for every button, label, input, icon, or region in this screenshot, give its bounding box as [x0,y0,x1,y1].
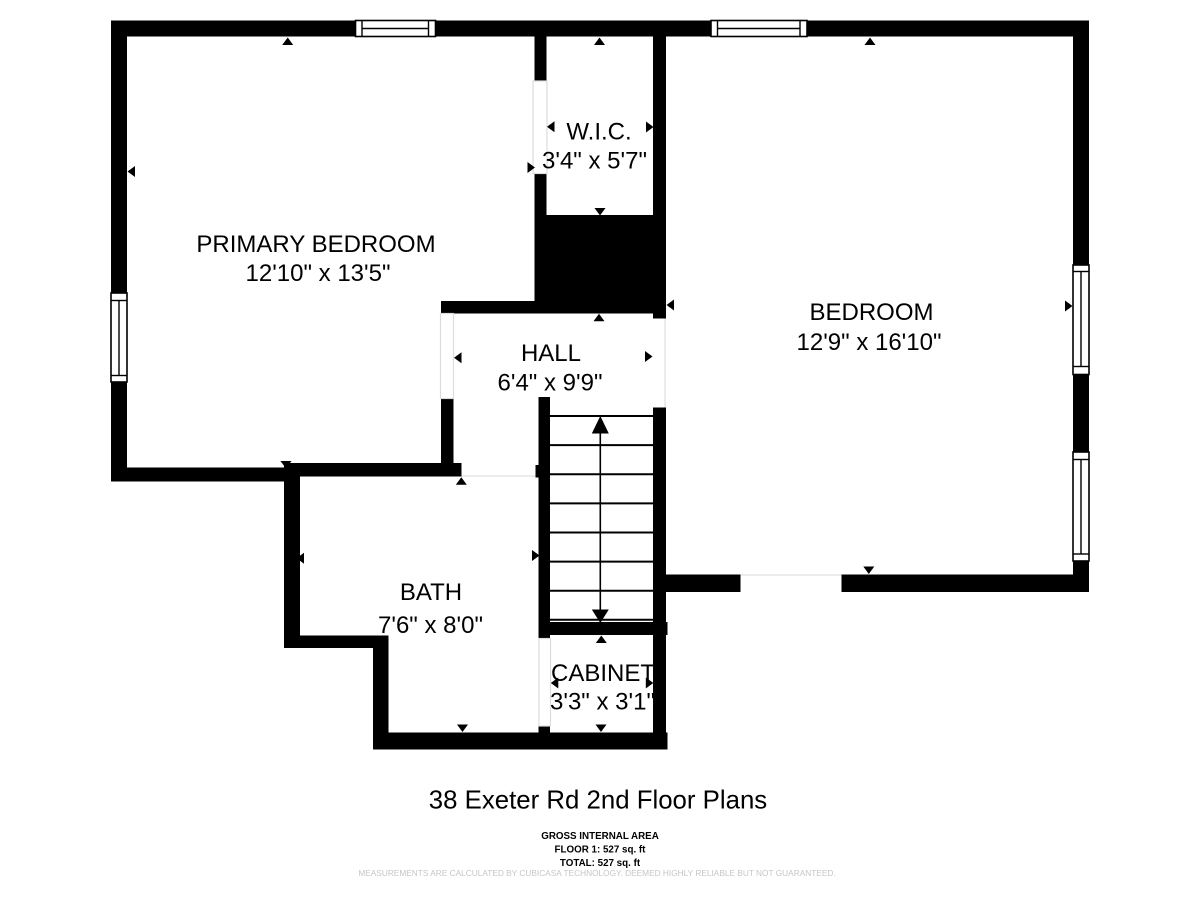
svg-text:GROSS INTERNAL AREA: GROSS INTERNAL AREA [541,831,659,842]
svg-text:12'9" x 16'10": 12'9" x 16'10" [797,329,942,356]
svg-text:PRIMARY BEDROOM: PRIMARY BEDROOM [196,231,435,258]
svg-text:MEASUREMENTS ARE CALCULATED BY: MEASUREMENTS ARE CALCULATED BY CUBICASA … [358,868,835,878]
svg-text:38 Exeter Rd 2nd Floor Plans: 38 Exeter Rd 2nd Floor Plans [429,787,767,815]
svg-text:7'6" x 8'0": 7'6" x 8'0" [378,612,483,639]
svg-text:FLOOR 1: 527 sq. ft: FLOOR 1: 527 sq. ft [555,844,647,855]
svg-text:6'4" x 9'9": 6'4" x 9'9" [498,370,603,397]
svg-text:12'10" x 13'5": 12'10" x 13'5" [246,260,391,287]
svg-text:W.I.C.: W.I.C. [566,119,631,146]
svg-text:BEDROOM: BEDROOM [809,299,933,326]
svg-text:BATH: BATH [400,579,462,606]
svg-text:HALL: HALL [521,340,581,367]
svg-text:3'4" x 5'7": 3'4" x 5'7" [542,148,647,175]
svg-text:CABINET: CABINET [551,660,655,687]
svg-text:3'3" x 3'1": 3'3" x 3'1" [550,689,655,716]
